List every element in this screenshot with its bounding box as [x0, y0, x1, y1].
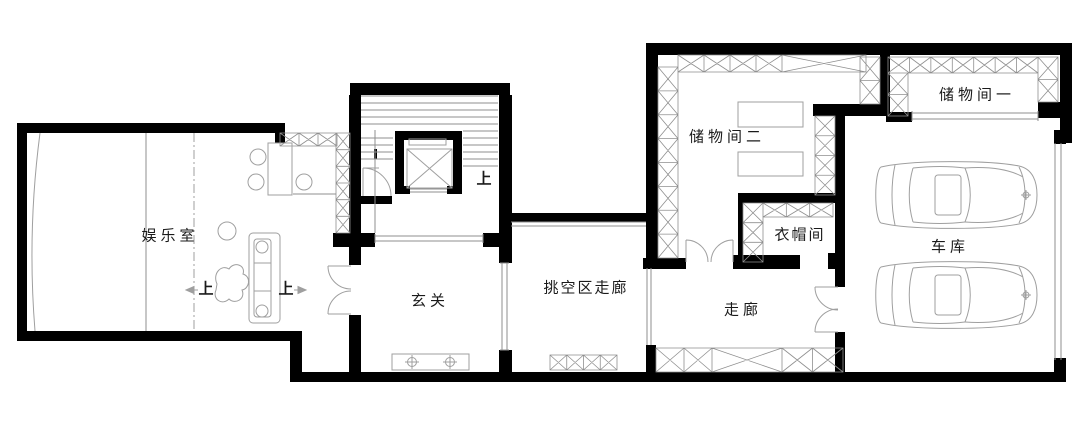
shoe-bench: [392, 354, 469, 370]
stair-room-door: [363, 168, 391, 196]
chair-icon: [250, 149, 266, 165]
label-corridor: 走廊: [724, 303, 762, 318]
shelf: [738, 152, 803, 176]
label-cloakroom: 衣帽间: [774, 228, 825, 243]
label-entertainment-room: 娱乐室: [141, 229, 198, 244]
stool-icon: [218, 222, 236, 240]
foyer-entertainment-double-door: [328, 266, 351, 314]
label-storage-room-2: 储物间二: [689, 130, 765, 145]
corridor-garage-double-door: [815, 287, 838, 332]
label-foyer: 玄关: [411, 294, 449, 309]
coffee-table: [215, 265, 249, 302]
up-arrow-left: [186, 287, 198, 294]
chair-icon: [296, 174, 312, 190]
chair-icon: [248, 174, 264, 190]
sofa: [249, 233, 280, 323]
shelf: [738, 102, 803, 127]
walls: [17, 43, 1072, 382]
label-storage-room-1: 储物间一: [939, 88, 1015, 103]
label-up-ramp-left: 上: [198, 282, 213, 297]
up-arrow-right: [294, 287, 306, 294]
label-up-stairs: 上: [476, 172, 491, 187]
label-garage: 车库: [931, 240, 969, 255]
label-up-ramp-right: 上: [278, 282, 293, 297]
floor-plan-drawing: [0, 0, 1080, 425]
corridor-storage-double-door: [686, 240, 733, 262]
elevator: [407, 139, 452, 188]
car-icon: [876, 162, 1037, 229]
car-icon: [876, 262, 1037, 329]
dining-table: [268, 143, 292, 195]
curved-wall-line: [32, 133, 40, 331]
elevator-cross: [407, 149, 452, 188]
label-void-corridor: 挑空区走廊: [543, 281, 628, 296]
floor-plan: 娱乐室 玄关 挑空区走廊 走廊 衣帽间 储物间二 储物间一 车库 上 上 上: [0, 0, 1080, 425]
